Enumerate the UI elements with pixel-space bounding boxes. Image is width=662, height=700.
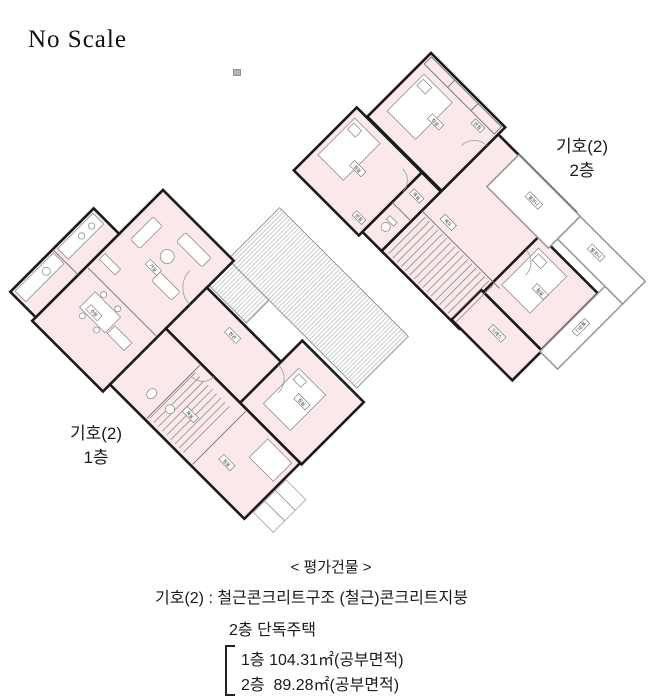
scale-note: No Scale: [28, 26, 127, 54]
footer-area-1f: 1층 104.31㎡(공부면적): [241, 646, 404, 670]
plan2-caption-line2: 2층: [527, 159, 637, 183]
plan1-caption-line1: 기호(2): [41, 422, 151, 446]
plan2-caption-line1: 기호(2): [527, 135, 637, 159]
footer-area-2f: 2층 89.28㎡(공부면적): [241, 671, 399, 695]
plan1-caption: 기호(2) 1층: [41, 422, 151, 470]
footer-building-line: 2층 단독주택: [229, 616, 316, 640]
plan1-caption-line2: 1층: [41, 446, 151, 470]
plan2-caption: 기호(2) 2층: [527, 135, 637, 183]
area-bracket: [225, 645, 235, 696]
appraisal-floorplan-page: 거실 주방 현관 침실 욕실 침실: [0, 0, 662, 700]
footer-title: < 평가건물 >: [0, 556, 662, 577]
footer-structure-line: 기호(2) : 철근콘크리트구조 (철근)콘크리트지붕: [155, 584, 468, 608]
stray-scan-mark: [233, 69, 241, 76]
